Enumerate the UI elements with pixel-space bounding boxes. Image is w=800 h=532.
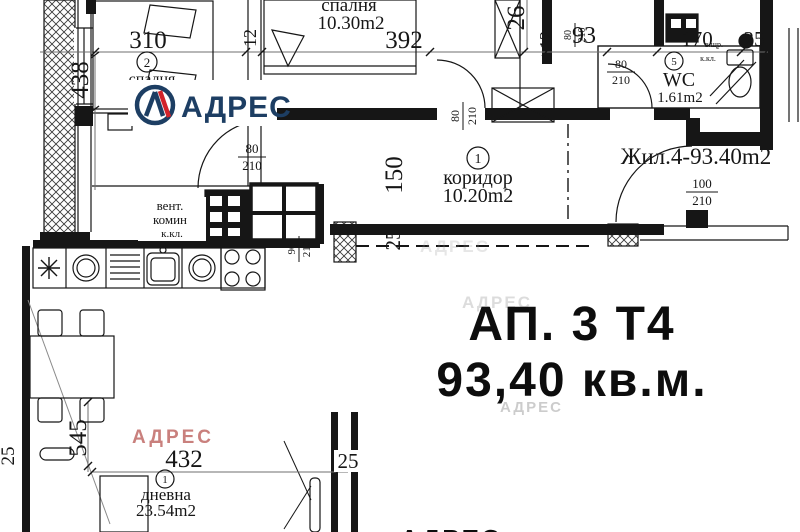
- shaft-label-2: к.кл.: [700, 54, 716, 63]
- corridor-area: 10.20m2: [443, 185, 514, 207]
- door-width: 80: [615, 57, 627, 71]
- dim-12-right: 12: [536, 31, 556, 49]
- wc-number: 5: [671, 56, 677, 68]
- dim-432: 432: [165, 446, 203, 473]
- floor-plan-drawing: АДРЕС АДРЕС АДРЕС АДРЕС АДРЕС 2 спалня 1…: [0, 0, 800, 532]
- bedroom2-area: 10.30m2: [317, 13, 384, 34]
- corridor-number: 1: [475, 152, 482, 167]
- floor-plan-page: АДРЕС АДРЕС АДРЕС АДРЕС АДРЕС 2 спалня 1…: [0, 0, 800, 532]
- door-80-210-kitchen: 80 210: [238, 141, 266, 173]
- room-labels: 2 спалня 13.2 спалня 10.30m2 1 коридор 1…: [129, 0, 772, 520]
- door-height: 210: [465, 107, 479, 125]
- dim-170: 170: [681, 27, 713, 51]
- title-block: АП. 3 Т4 93,40 кв.м.: [436, 298, 707, 407]
- door-height: 210: [242, 158, 262, 173]
- door-width: 80: [563, 30, 574, 40]
- door-width: 100: [692, 176, 712, 191]
- terrace-door-leaf: [310, 478, 320, 532]
- door-width: 80: [448, 110, 462, 122]
- door-height: 210: [577, 28, 588, 43]
- agency-logo: АДРЕС: [128, 80, 292, 126]
- wc-area: 1.61m2: [657, 90, 702, 106]
- living-area: 23.54m2: [136, 501, 196, 520]
- dim-438: 438: [67, 61, 94, 99]
- unit-label: Жил.4-93.40m2: [621, 144, 771, 169]
- bedroom1-number: 2: [144, 55, 151, 70]
- wc-name: WC: [663, 69, 695, 91]
- door-width: 80: [246, 141, 259, 156]
- watermark-clipped-bottom: АДРЕС: [400, 524, 502, 532]
- dim-25-top: 25: [744, 27, 765, 51]
- dim-150: 150: [381, 156, 408, 194]
- dim-545: 545: [65, 419, 92, 457]
- door-height: 210: [301, 240, 313, 257]
- vent-label-2: комин: [153, 212, 187, 227]
- door-height: 210: [612, 73, 630, 87]
- dim-25-bottom: 25: [338, 449, 359, 473]
- watermark-pink: АДРЕС: [132, 427, 214, 448]
- door-height: 210: [692, 193, 712, 208]
- door-100-210-entry: 100 210: [686, 176, 718, 208]
- title-apartment: АП. 3 Т4: [468, 298, 675, 351]
- dim-26: 26: [503, 6, 530, 31]
- title-area: 93,40 кв.м.: [436, 354, 707, 407]
- vent-label-3: к.кл.: [161, 228, 183, 240]
- fan-symbol: [38, 257, 60, 279]
- dim-12-left: 12: [240, 29, 260, 47]
- logo-brand-text: АДРЕС: [181, 91, 292, 124]
- watermark-ghost-mid: АДРЕС: [420, 237, 490, 256]
- door-80-210-bedroom2: 80 210: [448, 102, 479, 130]
- dim-392: 392: [385, 27, 423, 54]
- stove: [221, 246, 265, 290]
- dim-25-midwall: 25: [381, 230, 405, 251]
- vent-shaft-blocks: [205, 184, 317, 240]
- dishwasher-lines: [110, 255, 140, 279]
- door-width: 90: [286, 243, 298, 255]
- sink: [147, 247, 179, 285]
- kitchen-counter: [33, 246, 265, 290]
- door-80-210-wc: 80 210: [607, 57, 635, 87]
- vent-label-1: вент.: [157, 198, 184, 213]
- dim-310: 310: [129, 27, 167, 54]
- dim-25-leftedge: 25: [0, 447, 19, 466]
